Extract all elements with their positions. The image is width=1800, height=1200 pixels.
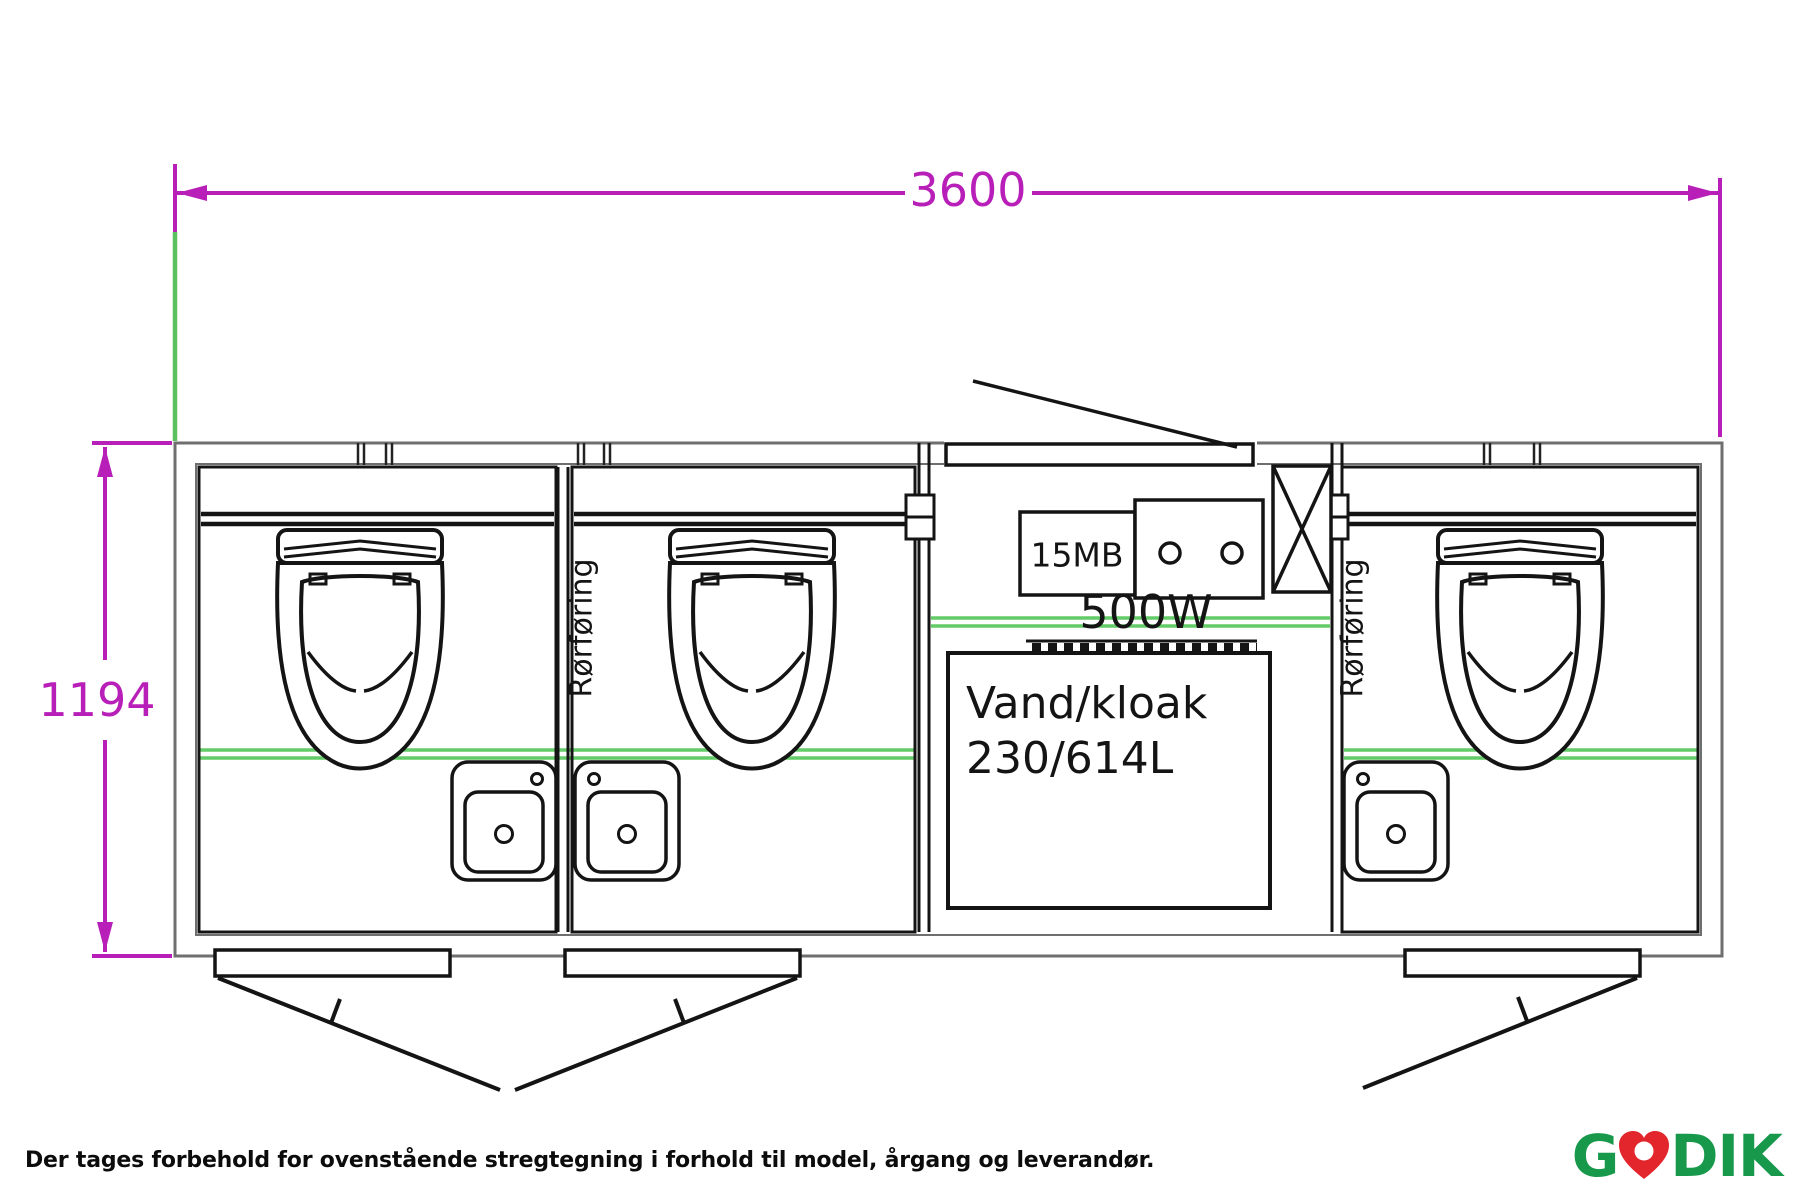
door-threshold-2: [565, 950, 800, 976]
pipe-duct-label-left: Rørføring: [565, 558, 600, 697]
sink-icon-room1: [452, 762, 556, 880]
meter-box-label: 15MB: [1030, 536, 1123, 575]
sink-icon-room2: [575, 762, 679, 880]
double-socket-box: [1135, 500, 1263, 598]
service-door: [944, 381, 1257, 468]
heart-icon: [1616, 1129, 1672, 1183]
cross-duct-box: [1273, 466, 1331, 592]
height-dimension-label: 1194: [38, 673, 155, 727]
door-threshold-3: [1405, 950, 1640, 976]
sink-icon-room3: [1344, 762, 1448, 880]
door-swing-3: [1363, 978, 1637, 1088]
heater-label: 500W: [1079, 585, 1212, 639]
floor-plan-svg: [0, 0, 1800, 1200]
service-area: [944, 381, 1331, 908]
toilet-icon-room1: [277, 530, 443, 769]
door-threshold-1: [215, 950, 450, 976]
technical-drawing-page: 3600 1194 15MB 500W Rørføring Rørføring …: [0, 0, 1800, 1200]
heater-strip: [1026, 641, 1257, 648]
door-swing-1: [218, 978, 500, 1090]
godik-logo: G DIK: [1572, 1122, 1782, 1190]
disclaimer-text: Der tages forbehold for ovenstående stre…: [25, 1148, 1154, 1173]
pipe-duct-label-right: Rørføring: [1336, 558, 1371, 697]
door-swing-2: [515, 978, 797, 1090]
room-back-wall-lines: [201, 514, 1696, 524]
entry-doors: [215, 950, 1640, 1090]
width-dimension-label: 3600: [909, 163, 1026, 217]
toilet-icon-room2: [669, 530, 835, 769]
logo-letters-dik: DIK: [1670, 1122, 1782, 1190]
toilet-icon-room3: [1437, 530, 1603, 769]
tank-label-line1: Vand/kloak: [966, 676, 1207, 731]
tank-label-line2: 230/614L: [966, 731, 1207, 786]
tank-label: Vand/kloak 230/614L: [966, 676, 1207, 786]
logo-letter-g: G: [1572, 1122, 1619, 1190]
